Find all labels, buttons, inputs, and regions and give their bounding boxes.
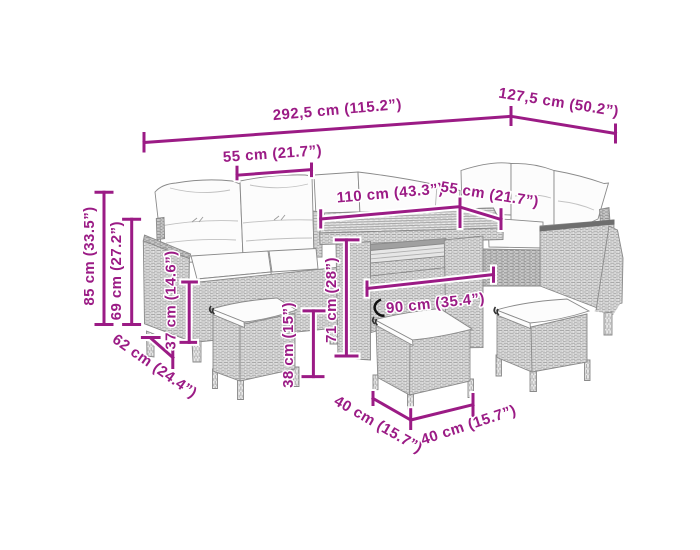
svg-text:71 cm (28”): 71 cm (28”) <box>323 257 340 343</box>
svg-text:55 cm (21.7”): 55 cm (21.7”) <box>222 142 322 166</box>
svg-text:37 cm (14.6”): 37 cm (14.6”) <box>163 250 180 349</box>
svg-text:85 cm (33.5”): 85 cm (33.5”) <box>81 206 98 305</box>
svg-text:292,5 cm (115.2”): 292,5 cm (115.2”) <box>272 96 402 124</box>
svg-text:69 cm (27.2”): 69 cm (27.2”) <box>108 221 125 320</box>
svg-text:38 cm (15”): 38 cm (15”) <box>280 302 297 388</box>
